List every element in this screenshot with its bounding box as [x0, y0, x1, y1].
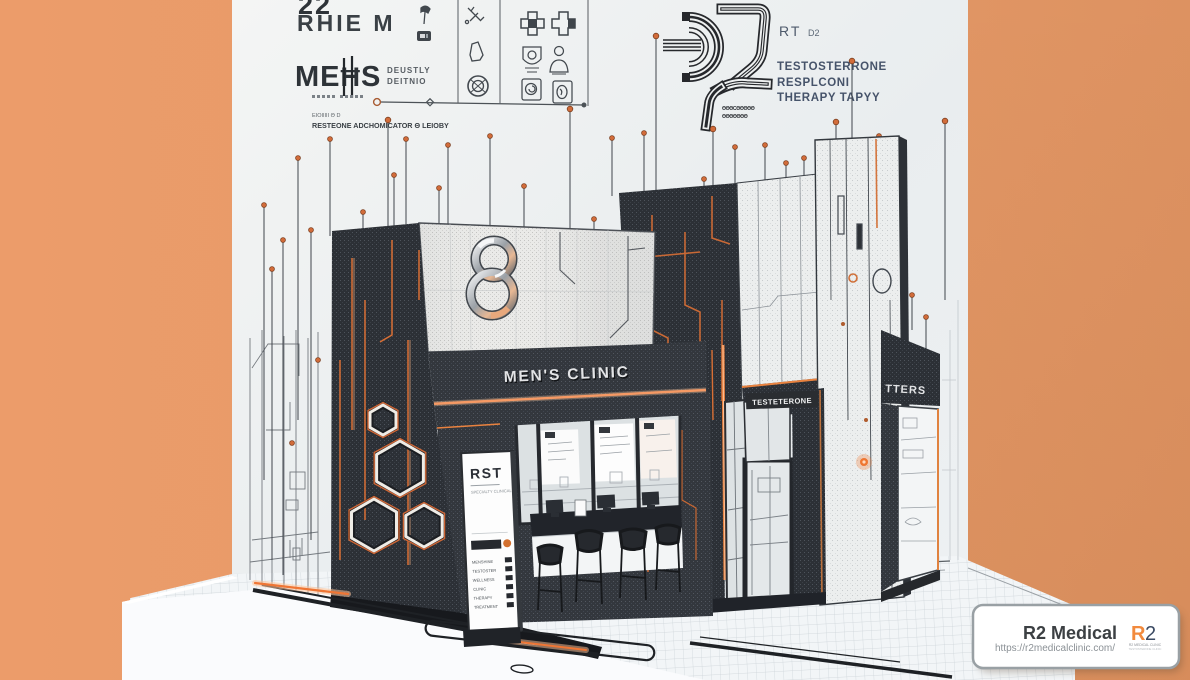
svg-text:TTERS: TTERS — [885, 383, 927, 397]
svg-text:ΘΘΘCΘΘΘΘΘ: ΘΘΘCΘΘΘΘΘ — [722, 106, 755, 112]
svg-text:2: 2 — [1145, 623, 1156, 645]
svg-text:RST: RST — [470, 464, 503, 481]
svg-text:MEĦS: MEĦS — [295, 61, 381, 93]
svg-text:ΘΘΘΘΘΘΘ: ΘΘΘΘΘΘΘ — [722, 114, 748, 120]
svg-text:WELLNESS: WELLNESS — [473, 577, 495, 583]
svg-text:RHIE M: RHIE M — [297, 10, 396, 36]
svg-text:DEITNIO: DEITNIO — [387, 77, 426, 86]
svg-text:DEUSTLY: DEUSTLY — [387, 66, 431, 75]
svg-text:R2 Medical: R2 Medical — [1023, 623, 1117, 643]
svg-text:RESPLCONI: RESPLCONI — [777, 77, 850, 89]
svg-text:THERAPY TAPYY: THERAPY TAPYY — [777, 92, 880, 104]
svg-text:EIOIIIII Θ D: EIOIIIII Θ D — [312, 113, 340, 119]
svg-text:RT: RT — [779, 23, 801, 39]
svg-text:R: R — [1131, 623, 1146, 645]
svg-text:TESTOSTERRONE: TESTOSTERRONE — [777, 61, 887, 73]
svg-text:D2: D2 — [808, 28, 820, 38]
svg-text:TESTOSTER: TESTOSTER — [472, 568, 496, 574]
svg-text:https://r2medicalclinic.com/: https://r2medicalclinic.com/ — [995, 643, 1115, 654]
svg-text:RESTEONE ADCHOMICATOR Θ LEIOBY: RESTEONE ADCHOMICATOR Θ LEIOBY — [312, 121, 449, 130]
svg-text:TESTOSTERONE CLINIC: TESTOSTERONE CLINIC — [1129, 647, 1162, 651]
svg-text:THERAPY: THERAPY — [473, 595, 492, 601]
svg-text:MENSHINE: MENSHINE — [472, 559, 494, 565]
svg-text:CLINIC: CLINIC — [473, 586, 486, 592]
